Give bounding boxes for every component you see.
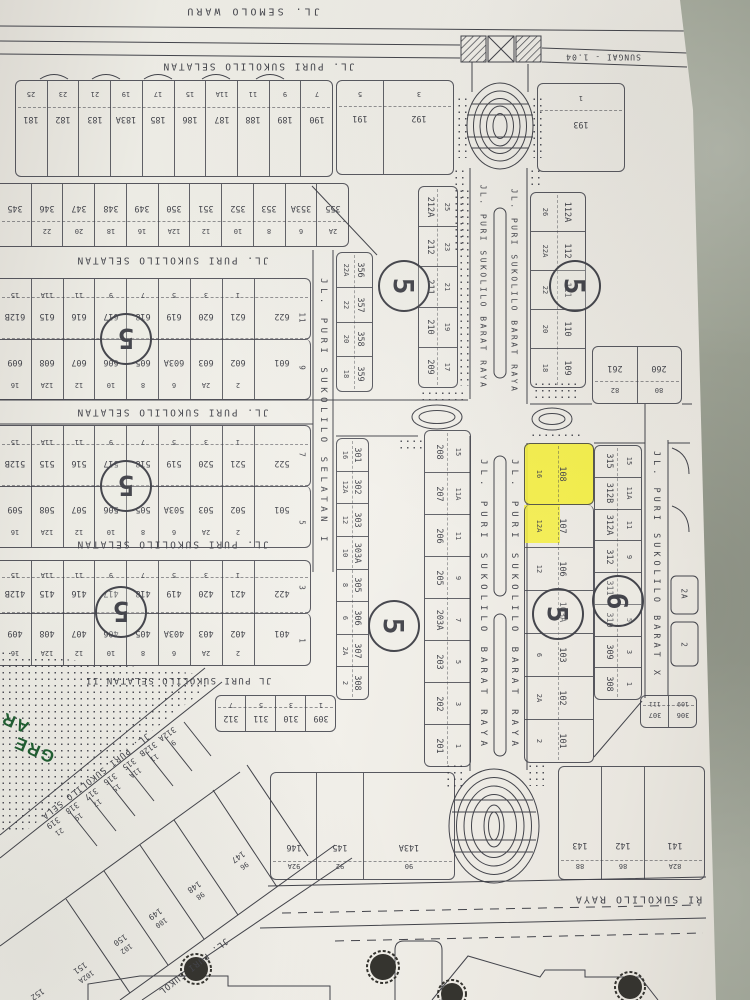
house-number: 22A [342, 264, 350, 277]
house-number: 7 [141, 571, 145, 579]
plot-cell: 2A603 [190, 339, 222, 399]
plot-number: 142 [615, 840, 630, 850]
plot-cell: 11A187 [205, 81, 237, 176]
plot-number: 112 [562, 243, 572, 258]
plot-cell: 82A141 [644, 767, 704, 879]
plot-cell: 3620 [190, 279, 222, 339]
house-number: 22 [342, 300, 350, 308]
col-201-208: 1520811A2071120692057203A520332021201 [424, 430, 471, 767]
plot-cell: 3520 [190, 426, 222, 486]
house-number: 8 [141, 649, 145, 657]
block-600-north: 15612B11A6151161696177618561936201621622 [0, 278, 311, 340]
plot-number: 602 [230, 357, 245, 367]
plot-number: 403A [164, 628, 184, 638]
plot-cell: 1309 [305, 696, 335, 731]
plot-cell: 12351 [189, 184, 221, 246]
street-label-barat-raya-se: JL. PURI SUKOLILO BARAT RAYA [509, 459, 519, 751]
house-number: 18 [342, 370, 350, 378]
col-356-359: 22A356223572035818359 [336, 252, 373, 392]
plot-cell: 20110 [531, 309, 585, 348]
plot-cell: 22346 [31, 184, 63, 246]
plot-number: 309 [604, 644, 614, 659]
plot-cell: 345 [0, 184, 31, 246]
street-label-selatan-2: JL. PURI SUKOLILO SELATAN [76, 255, 269, 266]
highlight-plot-108: 16108 [524, 443, 594, 505]
site-plan-photo: 25181231822118319183A171851518611A187111… [0, 0, 750, 1000]
house-number: 8 [341, 583, 349, 587]
plot-cell: 16509 [0, 486, 31, 547]
median-island [494, 456, 506, 596]
plot-number: 615 [40, 311, 55, 321]
house-number: 21 [91, 90, 99, 98]
house-number: 23 [59, 90, 67, 98]
house-number: 9 [298, 365, 307, 371]
plot-cell: 15512B [0, 426, 31, 486]
plot-number: 422 [275, 588, 290, 598]
house-number: 12 [202, 227, 210, 235]
plot-cell: 11188 [237, 81, 269, 176]
house-number: 16 [341, 451, 349, 459]
plot-number: 307 [352, 643, 362, 658]
plot-number: 621 [230, 311, 245, 321]
plot-cell: 9312 [595, 540, 641, 572]
plot-number: 351 [198, 203, 213, 213]
plot-number: 307 [648, 711, 661, 719]
plot-cell: 8305 [337, 569, 368, 602]
house-number: 25 [443, 202, 451, 210]
house-number: 12A [41, 381, 54, 389]
plot-cell: 1193 [538, 84, 624, 171]
planting-strip [458, 188, 469, 386]
house-number: 5 [454, 659, 462, 663]
plot-cell: 23212 [419, 226, 457, 266]
plot-cell: 1421 [222, 561, 254, 613]
house-number: 11 [298, 312, 307, 323]
plot-cell: 2A307 [337, 634, 368, 667]
plot-cell: 15208 [425, 431, 470, 472]
plot-number: 185 [150, 114, 165, 124]
plot-cell: 90143A [363, 773, 455, 879]
plot-number: 207 [434, 486, 444, 501]
plot-number: 507 [71, 504, 86, 514]
plot-number: 306 [352, 610, 362, 625]
house-number: 20 [75, 227, 83, 235]
plot-number: 312 [223, 713, 238, 723]
plot-number: 345 [8, 203, 23, 213]
plot-number: 508 [40, 504, 55, 514]
house-number: 23 [443, 243, 451, 251]
plot-number: 622 [275, 311, 290, 321]
plot-cell: 23182 [47, 81, 79, 176]
plot-cell: 2402 [222, 613, 254, 665]
plot-cell: 80260 [637, 347, 682, 403]
plot-number: 419 [167, 588, 182, 598]
house-number: 2 [236, 528, 240, 536]
plot-number: 353 [262, 203, 277, 213]
house-number: 6 [341, 616, 349, 620]
plot-number: 311 [253, 713, 268, 723]
plot-cell: 11616 [63, 279, 95, 339]
plot-cell: 2308 [337, 666, 368, 699]
house-number: 1 [625, 682, 633, 686]
plot-cell: 88143 [559, 767, 601, 879]
plot-number: 193 [573, 119, 588, 129]
house-number: 2A [202, 528, 210, 536]
plot-number: 192 [411, 113, 426, 123]
house-number: 12A [41, 528, 54, 536]
bridge-hatch-west [461, 36, 486, 62]
traffic-island-east [532, 408, 572, 430]
house-number: 11A [41, 571, 54, 579]
house-number: 2 [680, 642, 689, 648]
plot-cell: 1521 [222, 426, 254, 486]
plot-number: 112A [562, 202, 572, 222]
plot-number: 208 [434, 444, 444, 459]
house-number: 16 [11, 381, 19, 389]
house-number: 11A [41, 438, 54, 446]
plot-number: 182 [55, 114, 70, 124]
plot-cell: 11516 [63, 426, 95, 486]
house-number: 9 [109, 291, 113, 299]
plot-cell: 12A302 [337, 471, 368, 504]
house-number: 8 [141, 528, 145, 536]
plot-number: 502 [230, 504, 245, 514]
plot-number: 421 [230, 588, 245, 598]
plot-number: 312 [604, 549, 614, 564]
plot-number: 401 [275, 628, 290, 638]
house-number: 19 [443, 323, 451, 331]
plot-number: 358 [355, 332, 365, 347]
plot-number: 312B [604, 483, 614, 503]
house-number: 18 [541, 364, 549, 372]
plot-cell: 16409 [0, 613, 31, 665]
plot-cell: 17185 [142, 81, 174, 176]
plot-cell: 19183A [110, 81, 142, 176]
plot-cell: 22A356 [337, 253, 372, 287]
plot-cell: 21183 [78, 81, 110, 176]
plot-cell: 6403A [158, 613, 190, 665]
plot-cell: 11A312B [595, 477, 641, 509]
plot-cell: 3310 [275, 696, 305, 731]
plot-number: 310 [283, 713, 298, 723]
plot-number: 415 [40, 588, 55, 598]
house-number: 11 [249, 90, 257, 98]
circled-block-number: 5 [368, 600, 420, 652]
house-number: 90 [405, 862, 413, 870]
plot-cell: 3309 [595, 636, 641, 668]
block-193: 1193 [537, 83, 625, 172]
block-141-143: 881438614282A141 [558, 766, 705, 880]
plot-number: 308 [604, 676, 614, 691]
plot-cell: 7190 [300, 81, 332, 176]
plot-cell: 11206 [425, 514, 470, 556]
plot-number: 106 [557, 561, 567, 576]
plot-cell: 25181 [16, 81, 47, 176]
house-number: 15 [625, 457, 633, 465]
plot-number: 608 [40, 357, 55, 367]
house-number: 1 [579, 94, 583, 102]
plot-number: 609 [8, 357, 23, 367]
planting-strip [456, 96, 467, 158]
median-island [494, 614, 506, 756]
house-number: 11A [41, 291, 54, 299]
house-number: 2A [202, 381, 210, 389]
plot-cell: 6306 [337, 601, 368, 634]
plot-cell: 25212A [419, 187, 457, 226]
col-308-315: 1531511A312B11312A9312311531033091308 [594, 445, 642, 700]
plot-cell: 12106 [525, 547, 593, 590]
plot-cell: 92A146 [271, 773, 316, 879]
plot-number: 356 [355, 262, 365, 277]
plot-number: 210 [425, 320, 435, 335]
block-260-261: 8226180260 [592, 346, 682, 404]
map-paper: 25181231822118319183A171851518611A187111… [0, 0, 750, 1000]
plot-cell: 2A355 [316, 184, 348, 246]
plot-number: 206 [434, 528, 444, 543]
house-number: 7 [298, 452, 307, 458]
street-label-barat-x: JL. PURI SUKOLILO BARAT X [651, 451, 661, 679]
block-400-south: 1640912A408124071040684056403A2A40324024… [0, 613, 311, 666]
house-number: 12 [535, 565, 543, 573]
plot-cell: 17209 [419, 347, 457, 387]
plot-cell: 18109 [531, 348, 585, 387]
plot-number: 202 [434, 696, 444, 711]
house-number: 15 [11, 438, 19, 446]
median-island [494, 208, 506, 378]
plot-cell: 3192 [383, 81, 453, 174]
circled-block-number: 5 [378, 260, 430, 312]
plot-number: 107 [557, 518, 567, 533]
house-number: 8 [267, 227, 271, 235]
plot-number: 101 [557, 733, 567, 748]
plot-cell: 11A415 [31, 561, 63, 613]
plot-cell: 1201 [425, 724, 470, 766]
plot-number: 301 [352, 447, 362, 462]
house-number: 16 [11, 528, 19, 536]
plot-cell: 15315 [595, 446, 641, 477]
plot-number: 146 [286, 842, 301, 852]
planting-strip [398, 438, 422, 452]
house-number: 3 [625, 650, 633, 654]
plot-number: 407 [71, 628, 86, 638]
circled-block-number: 5 [100, 313, 152, 365]
plot-cell: 12A608 [31, 339, 63, 399]
bridge-hatch-east [516, 36, 541, 62]
plot-cell: 92145 [316, 773, 362, 879]
house-number: 2A [535, 694, 543, 702]
plot-number: 203 [434, 654, 444, 669]
house-number: 1 [236, 291, 240, 299]
plot-number: 403 [199, 628, 214, 638]
house-number: 5 [258, 701, 262, 709]
plot-number: 305 [352, 578, 362, 593]
plot-number: 503 [199, 504, 214, 514]
house-number: 10 [341, 548, 349, 556]
house-number: 2A [328, 227, 336, 235]
plot-cell: 10303A [337, 536, 368, 569]
house-number: 1 [454, 743, 462, 747]
plot-cell: 2A403 [190, 613, 222, 665]
planting-strip [527, 763, 544, 786]
street-label-selatan-3: JL. PURI SUKOLILO SELATAN [76, 407, 269, 418]
plot-cell: 19210 [419, 307, 457, 347]
house-number: 8 [141, 381, 145, 389]
plot-number: 603 [199, 357, 214, 367]
plot-cell: 5203 [425, 640, 470, 682]
plot-number: 601 [275, 357, 290, 367]
street-label-selatan-4: JL. PURI SUKOLILO SELATAN [76, 539, 269, 550]
house-number: 3 [416, 90, 420, 98]
house-number: 86 [619, 862, 627, 870]
plot-cell: 3420 [190, 561, 222, 613]
house-number: 92A [287, 862, 300, 870]
plot-cell: 5519 [158, 426, 190, 486]
house-number: 82 [611, 386, 619, 394]
plot-number: 203A [434, 609, 444, 629]
street-label-selatan-north: JL. PURI SUKOLILO SELATAN [162, 61, 355, 72]
plot-cell: 16301 [337, 439, 368, 471]
plot-number: 188 [246, 114, 261, 124]
plot-cell: 7312 [216, 696, 245, 731]
house-number: 80 [655, 386, 663, 394]
block-191-192: 51913192 [336, 80, 454, 175]
house-number: 2 [236, 649, 240, 657]
plot-number: 501 [275, 504, 290, 514]
plot-cell: 16609 [0, 339, 31, 399]
plot-cell: 1308 [595, 667, 641, 699]
house-number: 12 [75, 381, 83, 389]
house-number: 6 [172, 381, 176, 389]
plot-cell: 7203A [425, 598, 470, 640]
plot-number: 260 [652, 363, 667, 373]
plot-cell: 2602 [222, 339, 254, 399]
house-number: 22A [541, 245, 549, 258]
house-number: 7 [454, 617, 462, 621]
plot-cell: 11A515 [31, 426, 63, 486]
house-number: 10 [107, 528, 115, 536]
plot-cell: 2101 [525, 719, 593, 762]
planting-strip [420, 390, 466, 402]
plot-cell: 82261 [593, 347, 637, 403]
circled-block-number: 5 [95, 586, 147, 638]
plot-number: 302 [352, 480, 362, 495]
plot-number: 416 [71, 588, 86, 598]
house-number: 12A [341, 481, 349, 494]
house-number: 5 [172, 571, 176, 579]
plot-number: 408 [40, 628, 55, 638]
house-number: 1 [236, 438, 240, 446]
house-number: 3 [204, 291, 208, 299]
plot-cell: 5191 [337, 81, 383, 174]
south-road-stub [395, 941, 442, 1000]
plot-number: 603A [164, 357, 184, 367]
trees [181, 951, 645, 1000]
plot-number: 143 [572, 840, 587, 850]
house-number: 6 [172, 528, 176, 536]
plot-cell: 16108 [525, 444, 593, 504]
plot-cell: 18348 [94, 184, 126, 246]
plot-number: 212A [425, 196, 435, 216]
house-number: 20 [342, 335, 350, 343]
house-number: 6 [535, 653, 543, 657]
plot-cell: 5311 [245, 696, 275, 731]
plot-number: 420 [199, 588, 214, 598]
house-number: 15 [454, 447, 462, 455]
plot-number: 347 [71, 203, 86, 213]
house-number: 11 [454, 531, 462, 539]
house-number: 7 [141, 291, 145, 299]
house-number: 82A [668, 862, 681, 870]
plot-number: 607 [71, 357, 86, 367]
circled-block-number: 6 [592, 575, 644, 627]
house-number: 6 [299, 227, 303, 235]
house-number: 9 [109, 438, 113, 446]
street-label-barat-raya-ne: JL. PURI SUKOLILO BARAT RAYA [510, 189, 519, 394]
plot-number: 110 [562, 321, 572, 336]
plot-number: 306 [676, 711, 689, 719]
plot-number: 303A [352, 542, 362, 562]
plot-cell: 15186 [174, 81, 206, 176]
plot-number: 308 [352, 676, 362, 691]
plot-cell: 12A350 [158, 184, 190, 246]
plot-cell: 11A615 [31, 279, 63, 339]
house-number: 2 [341, 681, 349, 685]
block-500-north: 15512B11A5151151695177518551935201521522 [0, 425, 311, 487]
house-number: 3 [298, 585, 307, 591]
house-number: 2A [202, 649, 210, 657]
house-number: 25 [27, 90, 35, 98]
plot-cell: 12A107 [525, 505, 593, 547]
circled-block-number: 5 [100, 460, 152, 512]
house-number: 22 [541, 286, 549, 294]
col-301-308: 1630112A3021230310303A830563062A3072308 [336, 438, 369, 700]
plot-number: 409 [8, 628, 23, 638]
house-number: 3 [204, 571, 208, 579]
plot-number: 412B [5, 588, 25, 598]
plot-cell: 15612B [0, 279, 31, 339]
block-181-190: 25181231822118319183A171851518611A187111… [15, 80, 333, 177]
house-number: 109 [677, 700, 689, 708]
plot-number: 303 [352, 512, 362, 527]
house-number: 1 [298, 638, 307, 644]
plot-number: 141 [667, 840, 682, 850]
plot-cell: 20358 [337, 322, 372, 357]
house-number: 17 [443, 363, 451, 371]
house-number: 92 [336, 862, 344, 870]
plot-cell: 1621 [222, 279, 254, 339]
house-number: 88 [576, 862, 584, 870]
house-number: 11A [454, 487, 462, 500]
plot-number: 186 [182, 114, 197, 124]
block-309-312: 7312531133101309 [215, 695, 336, 732]
house-number: 5 [358, 90, 362, 98]
house-number: 11 [75, 571, 83, 579]
plot-number: 520 [199, 458, 214, 468]
plot-cell: 22357 [337, 287, 372, 322]
plot-number: 201 [434, 738, 444, 753]
plot-number: 181 [24, 114, 39, 124]
house-number: 12 [341, 516, 349, 524]
plot-number: 109 [562, 360, 572, 375]
plot-number: 350 [166, 203, 181, 213]
block-400-north: 15412B11A4151141694177418541934201421422 [0, 560, 311, 614]
plot-number: 309 [313, 713, 328, 723]
plot-number: 312A [604, 515, 614, 535]
circled-block-number: 5 [549, 260, 601, 312]
house-number: 26 [541, 208, 549, 216]
plot-cell: 3202 [425, 682, 470, 724]
house-number: 16 [138, 227, 146, 235]
